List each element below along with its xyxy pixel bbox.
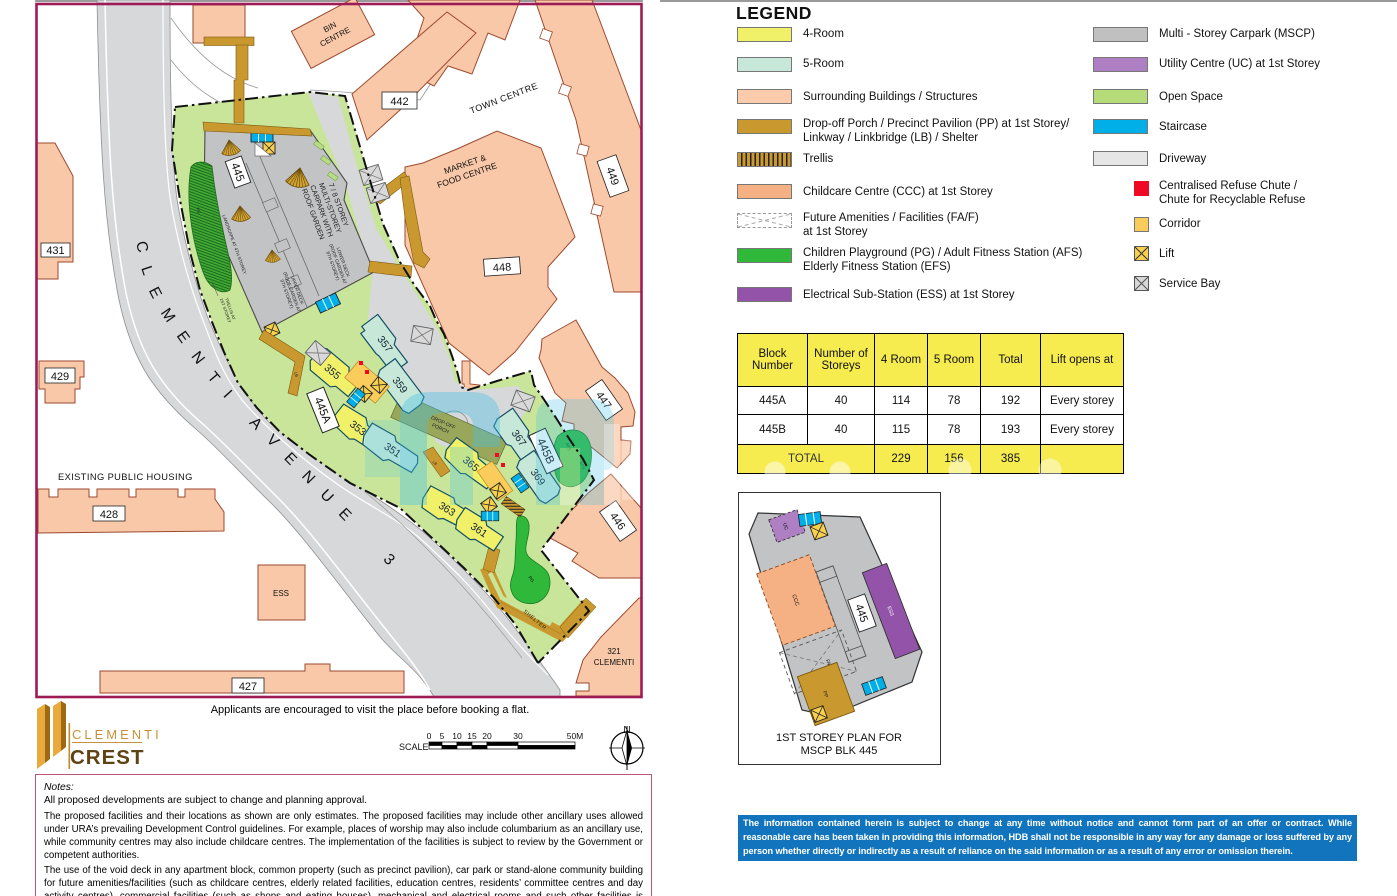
- svg-text:MSCP BLK 445: MSCP BLK 445: [801, 745, 878, 757]
- svg-text:15: 15: [467, 731, 477, 741]
- svg-text:ESS: ESS: [273, 589, 289, 598]
- svg-text:448: 448: [493, 261, 512, 274]
- svg-text:442: 442: [390, 96, 408, 108]
- svg-text:SCALE: SCALE: [399, 742, 429, 752]
- svg-text:EXISTING PUBLIC HOUSING: EXISTING PUBLIC HOUSING: [58, 472, 193, 482]
- svg-text:CLEMENTI: CLEMENTI: [72, 727, 162, 742]
- svg-text:TOWN CENTRE: TOWN CENTRE: [468, 81, 539, 116]
- svg-text:1ST STOREY PLAN FOR: 1ST STOREY PLAN FOR: [776, 732, 902, 744]
- svg-text:CREST: CREST: [70, 746, 144, 769]
- svg-text:427: 427: [239, 681, 257, 693]
- svg-text:0: 0: [427, 731, 432, 741]
- svg-text:20: 20: [482, 731, 492, 741]
- svg-text:5: 5: [440, 731, 445, 741]
- svg-text:CLEMENTI: CLEMENTI: [594, 658, 634, 667]
- svg-text:10: 10: [452, 731, 462, 741]
- svg-text:431: 431: [46, 245, 64, 257]
- svg-text:428: 428: [100, 509, 118, 521]
- svg-text:321: 321: [607, 647, 621, 656]
- svg-text:30: 30: [513, 731, 523, 741]
- svg-text:50M: 50M: [567, 731, 584, 741]
- svg-text:429: 429: [51, 371, 69, 383]
